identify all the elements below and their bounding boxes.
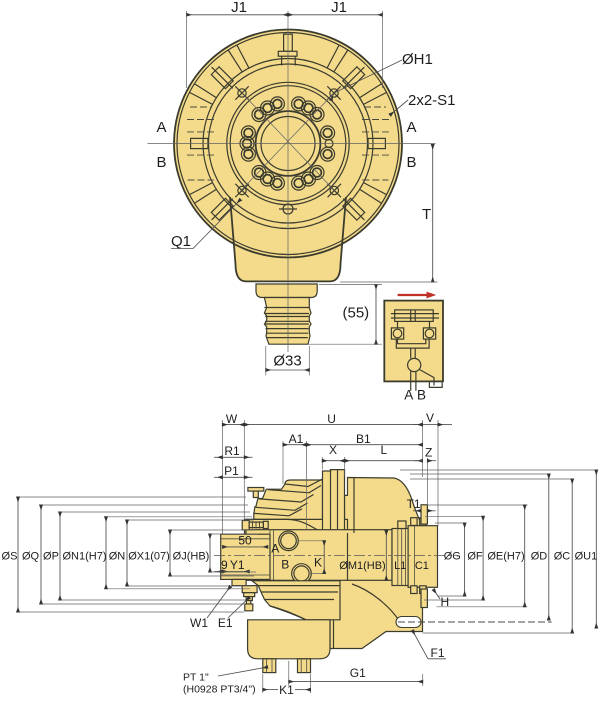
svg-text:G1: G1 [350,666,366,680]
svg-text:B: B [406,154,416,171]
svg-text:B: B [281,558,289,572]
svg-text:50: 50 [238,534,252,548]
svg-text:E1: E1 [218,616,233,630]
svg-text:B: B [156,154,166,171]
svg-text:9: 9 [221,558,228,572]
svg-text:L1: L1 [394,560,406,572]
svg-text:Q1: Q1 [171,233,191,250]
svg-text:ØN1(H7): ØN1(H7) [62,551,106,563]
svg-text:PT 1": PT 1" [183,672,209,684]
svg-text:Ø33: Ø33 [273,352,301,369]
svg-text:ØS: ØS [2,551,18,563]
svg-text:B1: B1 [356,432,371,446]
svg-text:R1: R1 [224,444,240,458]
svg-text:W1: W1 [190,616,208,630]
svg-text:ØQ: ØQ [22,551,40,563]
svg-text:ØN: ØN [109,551,126,563]
svg-text:ØC: ØC [554,551,571,563]
svg-text:Y1: Y1 [230,558,245,572]
svg-text:H: H [440,595,449,609]
svg-text:T1: T1 [407,497,421,511]
svg-text:J1: J1 [331,0,347,16]
svg-text:K: K [314,556,322,570]
svg-text:ØJ(HB): ØJ(HB) [173,551,210,563]
svg-text:A1: A1 [289,432,304,446]
svg-text:A: A [156,119,166,136]
svg-text:ØG: ØG [444,551,461,563]
svg-text:J1: J1 [231,0,247,16]
svg-text:T: T [422,206,431,223]
svg-text:B: B [417,388,426,403]
svg-text:ØH1: ØH1 [402,51,433,68]
svg-text:(H0928 PT3/4"): (H0928 PT3/4") [183,684,256,696]
svg-text:X: X [329,443,337,457]
svg-text:V: V [426,411,434,425]
svg-text:A: A [271,542,279,556]
svg-text:C1: C1 [415,560,429,572]
svg-text:(55): (55) [343,305,370,322]
svg-text:ØM1(HB): ØM1(HB) [339,560,385,572]
svg-text:ØF: ØF [467,551,483,563]
svg-text:A: A [406,119,416,136]
svg-text:L: L [380,443,387,457]
svg-text:K1: K1 [279,683,294,697]
svg-text:W: W [226,412,238,426]
svg-text:F1: F1 [430,646,444,660]
svg-text:U: U [327,412,336,426]
svg-text:ØD: ØD [531,551,548,563]
svg-text:ØP: ØP [43,551,59,563]
svg-text:ØX1(07): ØX1(07) [128,551,170,563]
svg-text:A: A [404,388,413,403]
svg-text:ØU1: ØU1 [575,551,598,563]
svg-text:2x2-S1: 2x2-S1 [408,92,456,109]
svg-text:ØE(H7): ØE(H7) [487,551,524,563]
svg-text:P1: P1 [224,464,239,478]
svg-text:Z: Z [425,446,432,460]
